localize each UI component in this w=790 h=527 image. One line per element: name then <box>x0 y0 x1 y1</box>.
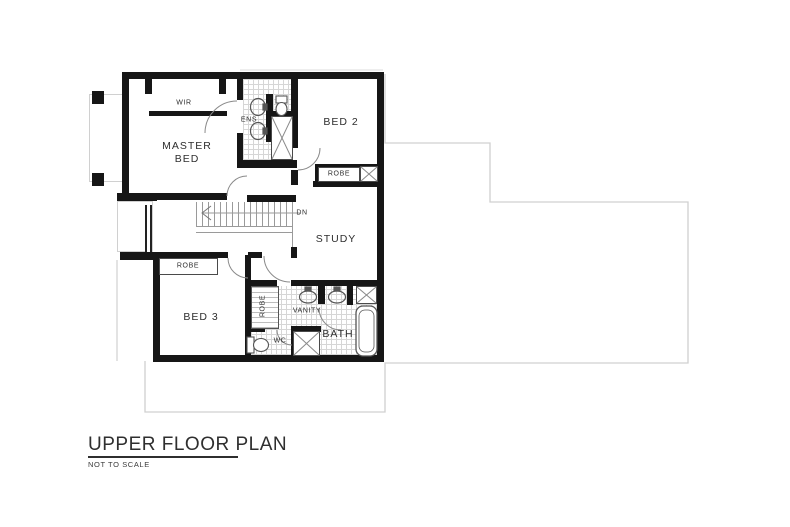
stair-direction-arrow <box>202 206 300 220</box>
label-dn: DN <box>296 210 307 217</box>
bathtub <box>356 306 377 356</box>
bed3-door-arc <box>228 258 248 278</box>
vanity-basins <box>300 287 346 303</box>
label-robe-bed2: ROBE <box>328 171 350 178</box>
label-robe-hall: ROBE <box>177 263 199 270</box>
label-ens: ENS <box>241 117 257 124</box>
label-wc: WC <box>274 338 287 345</box>
label-robe-bath: ROBE <box>260 295 267 317</box>
ensuite-door-arc <box>205 101 237 133</box>
plan-scale-note: NOT TO SCALE <box>88 460 150 469</box>
label-bath: BATH <box>322 329 353 340</box>
label-bed3: BED 3 <box>183 312 218 323</box>
label-master-line2: BED <box>175 153 200 165</box>
label-vanity: VANITY <box>293 308 321 315</box>
bed2-door-arc <box>298 148 320 170</box>
ensuite-toilet <box>276 96 287 116</box>
label-study: STUDY <box>316 234 357 245</box>
bath-corridor-door-arc <box>264 256 290 282</box>
label-wir: WIR <box>176 100 191 107</box>
floor-plan-page: WIR ENS BED 2 MASTERBED ROBE DN STUDY RO… <box>0 0 790 527</box>
label-bed2: BED 2 <box>323 117 358 128</box>
bath-door-arc <box>319 308 341 330</box>
label-master-line1: MASTER <box>162 140 212 152</box>
plan-title-underline <box>88 456 238 458</box>
plan-title: UPPER FLOOR PLAN <box>88 434 287 456</box>
label-master-bed: MASTERBED <box>162 140 212 166</box>
master-door-arc <box>227 176 247 196</box>
wc-toilet <box>247 337 269 353</box>
